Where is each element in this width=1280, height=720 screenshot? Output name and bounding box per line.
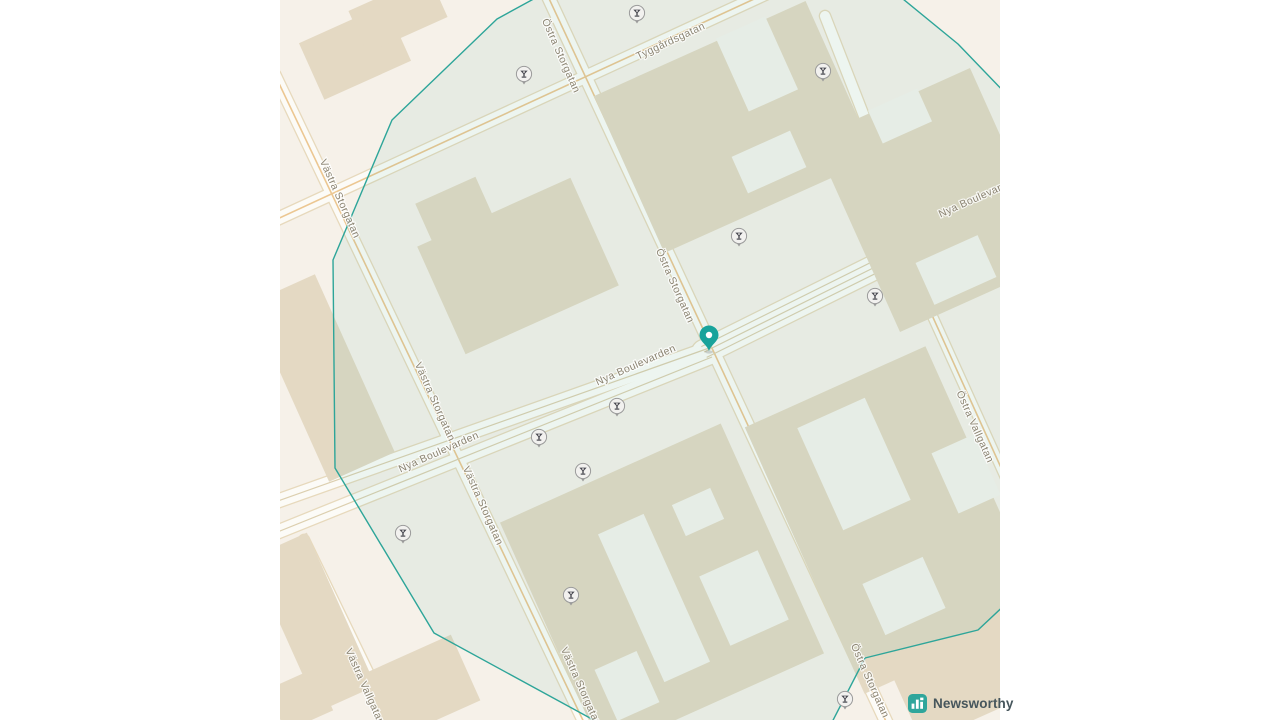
map[interactable]: Östra StorgatanTyggårdsgatanVästra Storg… xyxy=(280,0,1000,720)
newsworthy-logo: Newsworthy xyxy=(908,694,1014,713)
newsworthy-icon xyxy=(908,694,927,713)
highlight-area-boundary xyxy=(333,0,1000,720)
map-screenshot: Östra StorgatanTyggårdsgatanVästra Storg… xyxy=(0,0,1280,720)
map-canvas[interactable]: Östra StorgatanTyggårdsgatanVästra Storg… xyxy=(280,0,1000,720)
brand-name: Newsworthy xyxy=(933,696,1014,711)
